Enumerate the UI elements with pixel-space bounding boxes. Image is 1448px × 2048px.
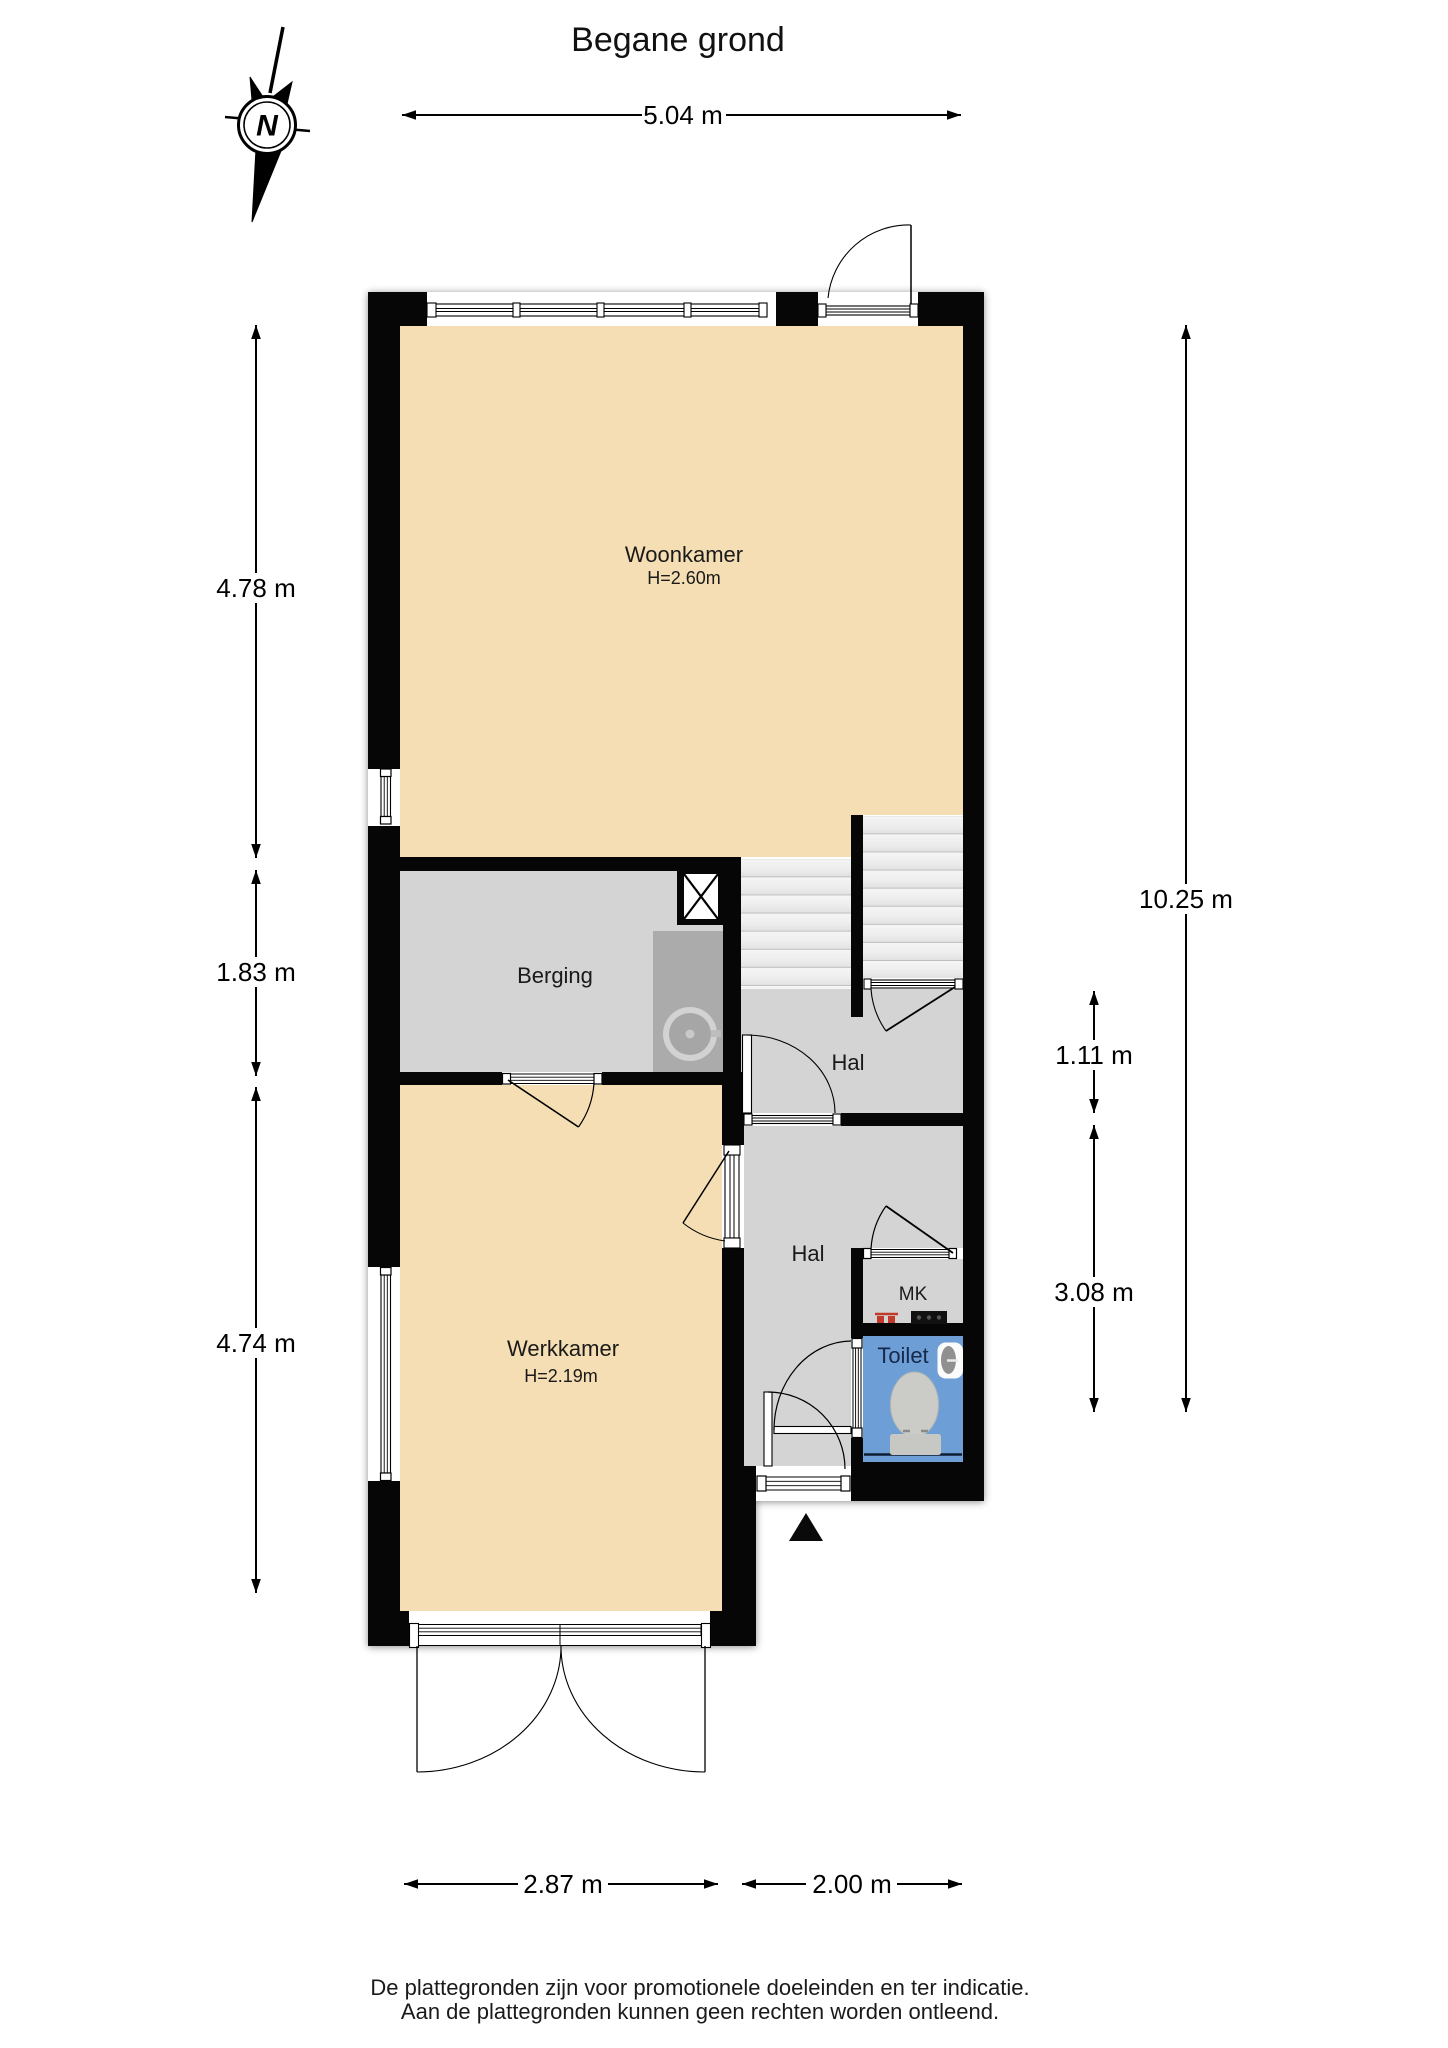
svg-text:Berging: Berging (517, 963, 593, 988)
svg-text:Werkkamer: Werkkamer (507, 1336, 619, 1361)
svg-text:Woonkamer: Woonkamer (625, 542, 743, 567)
svg-text:1.83 m: 1.83 m (216, 957, 296, 987)
svg-text:Begane grond: Begane grond (571, 21, 785, 59)
svg-text:10.25 m: 10.25 m (1139, 884, 1233, 914)
svg-text:De plattegronden zijn voor pro: De plattegronden zijn voor promotionele … (370, 1975, 1029, 2000)
svg-text:Toilet: Toilet (877, 1343, 928, 1368)
svg-text:H=2.19m: H=2.19m (524, 1366, 598, 1386)
svg-text:MK: MK (899, 1284, 928, 1305)
svg-text:4.78 m: 4.78 m (216, 573, 296, 603)
svg-text:2.87 m: 2.87 m (523, 1869, 603, 1899)
svg-text:N: N (256, 110, 279, 143)
svg-text:4.74 m: 4.74 m (216, 1328, 296, 1358)
svg-text:2.00 m: 2.00 m (812, 1869, 892, 1899)
svg-text:Hal: Hal (831, 1050, 864, 1075)
svg-text:1.11 m: 1.11 m (1055, 1040, 1133, 1070)
svg-text:Aan de plattegronden kunnen ge: Aan de plattegronden kunnen geen rechten… (401, 1999, 999, 2024)
svg-text:5.04 m: 5.04 m (643, 100, 723, 130)
svg-text:H=2.60m: H=2.60m (647, 568, 721, 588)
svg-text:3.08 m: 3.08 m (1054, 1277, 1134, 1307)
svg-text:Hal: Hal (791, 1241, 824, 1266)
